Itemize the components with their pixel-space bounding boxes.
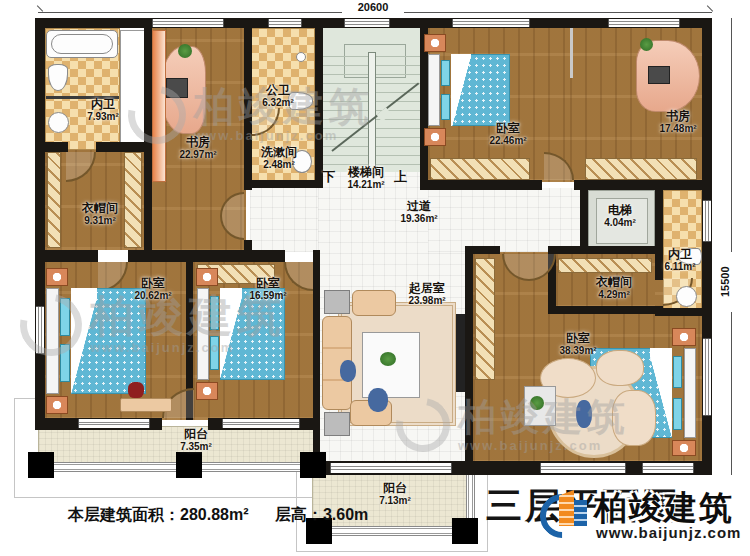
red-chair: [128, 382, 144, 398]
wall-segment: [420, 180, 542, 190]
stair-rail: [368, 52, 376, 174]
dimension-line-right: [731, 18, 732, 475]
footer-info: 本层建筑面积：280.88m² 层高：3.60m: [68, 505, 368, 526]
plant: [178, 44, 192, 58]
window: [540, 463, 626, 473]
balcony-center-railing: [312, 526, 474, 536]
side-table: [324, 290, 350, 314]
sink: [48, 112, 69, 133]
wall-segment: [244, 180, 323, 188]
nightstand: [196, 268, 218, 286]
room-label-elevator: 电梯4.04m²: [604, 204, 636, 229]
side-table: [324, 412, 350, 436]
room-label-bedroom-bm: 卧室16.59m²: [249, 277, 286, 302]
room-label-study-tr: 书房17.48m²: [659, 110, 696, 135]
wall-segment: [556, 246, 660, 254]
window: [152, 19, 224, 27]
nightstand: [46, 268, 68, 286]
partition-line: [570, 28, 573, 78]
wall-segment: [580, 190, 588, 252]
elevator-lobby-floor: [428, 188, 580, 252]
window: [642, 463, 694, 473]
sliding-door: [330, 463, 452, 473]
window: [222, 419, 300, 428]
wall-segment: [244, 240, 252, 262]
bed: [428, 54, 510, 126]
column: [176, 452, 202, 478]
room-label-balcony-left: 阳台7.35m²: [180, 428, 212, 453]
column: [452, 518, 478, 544]
wall-segment: [655, 308, 702, 316]
room-label-wash-room: 洗漱间2.48m²: [261, 146, 297, 171]
wall-segment: [548, 306, 658, 314]
window: [78, 419, 150, 428]
window: [268, 19, 302, 27]
wardrobe: [124, 152, 142, 248]
wall-segment: [35, 142, 68, 152]
room-label-bath-right: 内卫6.11m²: [664, 248, 695, 273]
wall-segment: [35, 250, 98, 262]
bench: [120, 398, 172, 412]
wall-segment: [144, 18, 152, 252]
nightstand: [672, 440, 696, 456]
window: [608, 19, 680, 27]
hallway-floor: [250, 188, 318, 252]
wardrobe: [475, 258, 495, 380]
room-label-closet-right: 衣帽间4.29m²: [596, 276, 632, 301]
room-label-bedroom-bl: 卧室20.62m²: [134, 277, 171, 302]
stair-flight-left: [322, 56, 368, 172]
computer-monitor: [648, 66, 670, 84]
bed: [197, 288, 285, 380]
dimension-tick: [37, 5, 43, 11]
cabinet: [152, 30, 166, 182]
wall-segment: [655, 190, 663, 280]
room-label-balcony-center: 阳台7.13m²: [379, 482, 411, 507]
room-label-living: 起居室23.98m²: [408, 282, 445, 307]
wall-segment: [465, 246, 473, 463]
bathtub-basin: [51, 34, 113, 54]
room-label-study-tl: 书房22.97m²: [179, 136, 216, 161]
window: [703, 338, 711, 416]
room-label-public-bath: 公卫6.32m²: [262, 84, 294, 109]
tv: [456, 314, 465, 392]
table-flowers: [380, 352, 396, 366]
room-label-bedroom-master: 卧室38.39m²: [559, 332, 596, 357]
dimension-top-value: 20600: [342, 1, 404, 13]
room-label-hallway: 过道19.36m²: [400, 200, 437, 225]
nightstand: [424, 34, 446, 52]
floor-area-text: 本层建筑面积：280.88m²: [68, 506, 249, 523]
sink: [676, 286, 697, 307]
chaise: [596, 350, 644, 386]
nightstand: [46, 396, 68, 414]
wall-segment: [96, 142, 144, 152]
dimension-right-value: 15500: [719, 252, 733, 312]
person-figure: [340, 360, 356, 382]
wall-segment: [128, 250, 285, 262]
table-flowers: [530, 396, 544, 410]
computer-monitor: [166, 78, 188, 98]
room-label-bath-tl: 内卫7.93m²: [87, 98, 119, 123]
column: [300, 452, 326, 478]
floor-height-text: 层高：3.60m: [275, 506, 368, 523]
column: [28, 452, 54, 478]
wall-segment: [574, 180, 712, 190]
window: [452, 19, 530, 27]
stair-down-label: 下: [322, 168, 335, 186]
room-label-closet-left: 衣帽间9.31m²: [82, 202, 118, 227]
wardrobe: [430, 158, 530, 180]
wall-segment: [313, 250, 320, 463]
nightstand: [672, 328, 696, 346]
bed: [46, 288, 146, 394]
floor-plan: 内卫7.93m² 书房22.97m² 公卫6.32m² 洗漱间2.48m² 下 …: [0, 0, 750, 556]
wardrobe: [558, 258, 652, 273]
dimension-tick: [707, 5, 713, 11]
wall-segment: [35, 18, 45, 430]
nightstand: [424, 128, 446, 146]
brand-website: www.baijunjz.com: [596, 524, 741, 541]
armchair: [352, 290, 396, 316]
towel-ring: [296, 52, 306, 62]
person-figure: [368, 388, 388, 412]
window: [703, 200, 711, 242]
person-figure: [576, 400, 592, 428]
wall-segment: [315, 18, 323, 180]
brand-logo-icon: [540, 486, 594, 544]
title-block: 三层平面图 柏竣建筑 www.baijunjz.com: [486, 478, 750, 556]
room-label-stairwell: 楼梯间14.21m²: [347, 166, 384, 191]
room-label-bedroom-tr: 卧室22.46m²: [489, 122, 526, 147]
wardrobe: [47, 152, 61, 248]
wall-segment: [244, 18, 252, 190]
stair-up-label: 上: [394, 168, 407, 186]
window: [36, 306, 44, 354]
wardrobe: [585, 158, 697, 180]
chaise: [612, 390, 656, 446]
window: [344, 19, 390, 27]
nightstand: [196, 382, 218, 400]
plant: [640, 38, 653, 51]
